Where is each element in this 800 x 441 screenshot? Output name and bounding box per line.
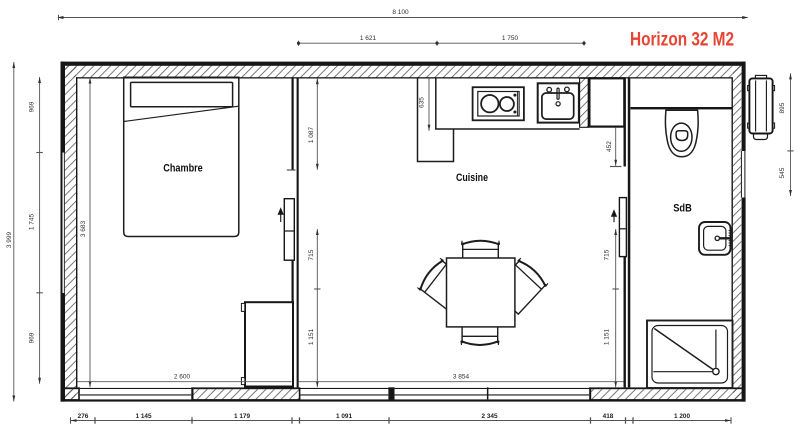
- svg-text:545: 545: [779, 167, 786, 178]
- svg-text:1 087: 1 087: [308, 126, 315, 143]
- svg-text:969: 969: [28, 332, 35, 343]
- svg-text:2 600: 2 600: [174, 374, 191, 381]
- svg-text:635: 635: [419, 97, 426, 108]
- svg-text:1 750: 1 750: [502, 35, 519, 42]
- svg-text:2 345: 2 345: [482, 413, 498, 420]
- svg-text:715: 715: [604, 249, 611, 260]
- svg-text:715: 715: [308, 249, 315, 260]
- svg-text:1 151: 1 151: [604, 328, 611, 345]
- svg-text:895: 895: [779, 102, 786, 113]
- svg-text:1 200: 1 200: [674, 413, 690, 420]
- svg-text:Horizon 32 M2: Horizon 32 M2: [630, 30, 734, 51]
- svg-text:1 745: 1 745: [28, 213, 35, 230]
- svg-text:3 854: 3 854: [453, 374, 470, 381]
- svg-text:1 151: 1 151: [308, 328, 315, 345]
- svg-text:Chambre: Chambre: [163, 162, 203, 174]
- svg-text:418: 418: [603, 413, 614, 420]
- svg-text:8 100: 8 100: [392, 9, 409, 16]
- svg-text:Cuisine: Cuisine: [456, 172, 488, 184]
- svg-text:276: 276: [78, 413, 89, 420]
- svg-text:SdB: SdB: [673, 202, 692, 214]
- svg-text:1 621: 1 621: [360, 35, 377, 42]
- svg-text:452: 452: [606, 141, 613, 152]
- svg-text:3 999: 3 999: [6, 231, 13, 248]
- svg-text:3 683: 3 683: [80, 220, 87, 237]
- svg-text:1 145: 1 145: [136, 413, 152, 420]
- svg-text:1 091: 1 091: [336, 413, 352, 420]
- svg-text:969: 969: [28, 101, 35, 112]
- svg-text:1 179: 1 179: [234, 413, 250, 420]
